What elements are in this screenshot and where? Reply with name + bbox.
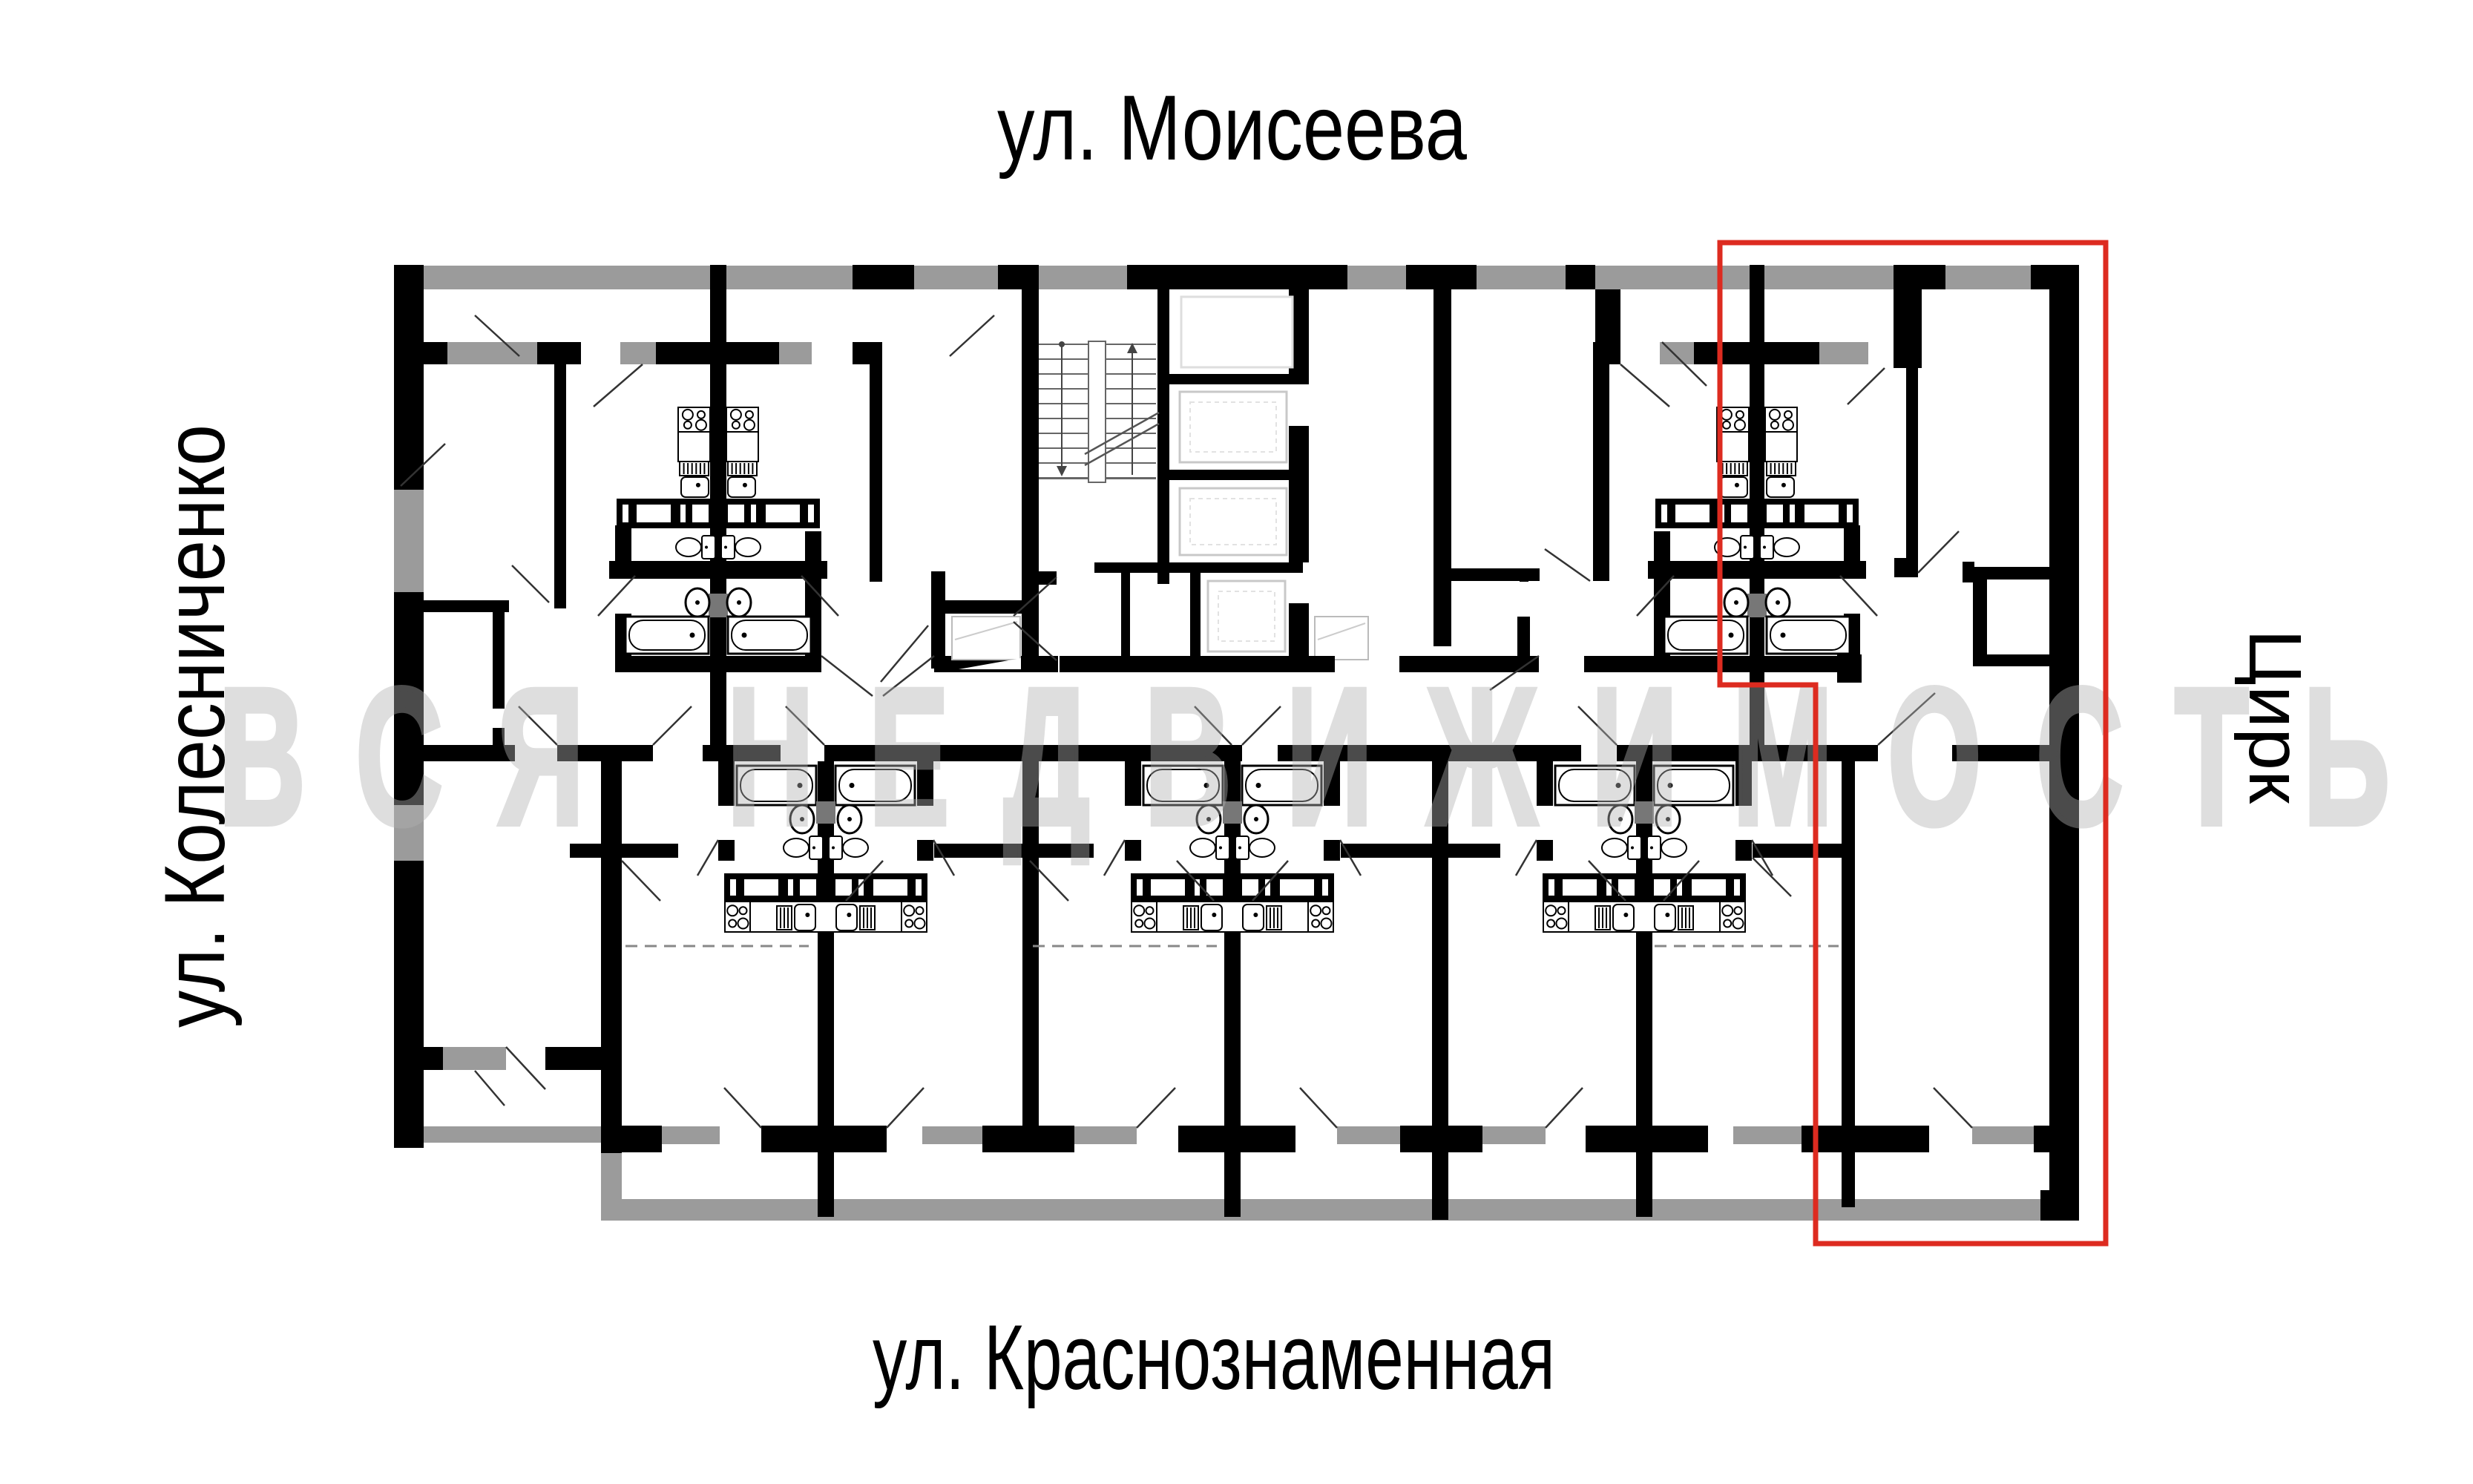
svg-text:ул. Моисеева: ул. Моисеева xyxy=(997,77,1467,180)
svg-text:ул. Краснознаменная: ул. Краснознаменная xyxy=(873,1307,1555,1409)
svg-text:ул. Колесниченко: ул. Колесниченко xyxy=(148,424,243,1028)
svg-text:ВСЯ НЕДВИЖИМОСТЬ: ВСЯ НЕДВИЖИМОСТЬ xyxy=(218,649,2389,865)
svg-text:Цирк: Цирк xyxy=(2233,629,2316,804)
